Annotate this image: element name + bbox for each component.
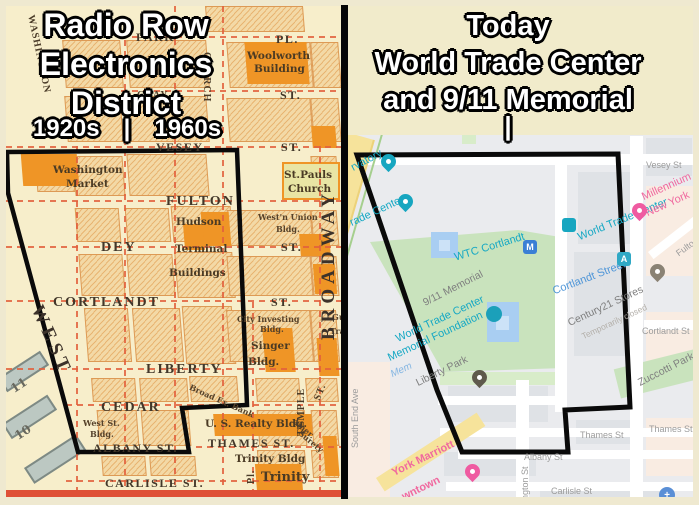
label-bldg-: Bldg. [90, 429, 114, 439]
label-west-n-union: West'n Union [258, 212, 318, 222]
label-broadway: BROADWAY [318, 189, 340, 340]
label-thames-st: Thames St [649, 424, 693, 434]
label-bldg-: Bldg. [260, 324, 284, 334]
label-west-st-: West St. [83, 418, 120, 428]
left-title-line-1: Radio Row [10, 6, 242, 45]
vintage-map-panel: PARKPL.WoolworthBuildingCLAYST.CHURCHWAS… [6, 6, 341, 497]
label-cedar: CEDAR [101, 400, 161, 416]
label-washington: Washington [53, 164, 123, 176]
label-st-: ST. [271, 295, 292, 310]
label-thames-st: Thames St [580, 430, 624, 440]
label-st-pauls: St.Pauls [284, 169, 332, 181]
label-vesey-st: Vesey St [646, 160, 682, 170]
label-cortlandt-st: Cortlandt St [642, 326, 690, 336]
screenshot-root: PARKPL.WoolworthBuildingCLAYST.CHURCHWAS… [0, 0, 699, 505]
right-title-tick: | [348, 112, 668, 140]
left-panel-title: Radio Row Electronics District [10, 6, 242, 123]
map-pin: A [617, 252, 631, 266]
label-building: Building [254, 63, 305, 75]
right-panel-title: Today World Trade Center and 9/11 Memori… [348, 8, 668, 119]
label-carlisle-st: Carlisle St [551, 486, 592, 496]
label-st-: ST. [281, 140, 302, 155]
label-bldg-: Bldg. [248, 356, 279, 368]
map-pin: M [523, 240, 537, 254]
label-albany-st-: ALBANY ST. [93, 441, 178, 456]
label-woolworth: Woolworth [247, 50, 310, 62]
label-pl-: Pl. [246, 470, 257, 484]
label-st-: ST. [281, 240, 302, 255]
label-buildings: Buildings [169, 267, 226, 279]
map-pin [562, 218, 576, 232]
label-liberty: LIBERTY [146, 362, 223, 378]
era-separator: | [124, 114, 131, 144]
label-pl-: PL. [276, 32, 299, 47]
label-thames-st-: THAMES ST. [208, 436, 295, 451]
right-title-line-2: World Trade Center [348, 45, 668, 82]
label-cortlandt: CORTLANDT [53, 295, 160, 311]
label-terminal: Terminal [175, 243, 227, 255]
era-start: 1920s [33, 114, 100, 144]
modern-map-panel: MA+ Vesey Strvatoryrade CenterWorld Trad… [348, 6, 693, 497]
label-south-end-ave: South End Ave [350, 389, 360, 448]
left-title-line-2: Electronics [10, 45, 242, 84]
label-singer: Singer [251, 340, 290, 352]
label-carlisle-st-: CARLISLE ST. [105, 476, 204, 491]
era-range: 1920s | 1960s [14, 114, 240, 144]
label-dey: DEY [101, 240, 137, 256]
label-city-investing: City Investing [237, 314, 299, 324]
era-end: 1960s [154, 114, 221, 144]
right-title-line-1: Today [348, 8, 668, 45]
panel-divider [341, 5, 348, 499]
label-bldg-: Bldg. [276, 224, 300, 234]
label-ngton-st: ngton St [520, 466, 530, 497]
label-trinity-bldg: Trinity Bldg [235, 453, 305, 465]
label-albany-st: Albany St [524, 452, 563, 462]
label-hudson: Hudson [176, 216, 221, 228]
label-trinity: Trinity [261, 470, 309, 485]
label-market: Market [66, 178, 109, 190]
map-pin [486, 306, 502, 322]
map-pin: + [659, 487, 675, 497]
label-st-: ST. [280, 88, 301, 103]
label-fulton: FULTON [166, 194, 235, 210]
